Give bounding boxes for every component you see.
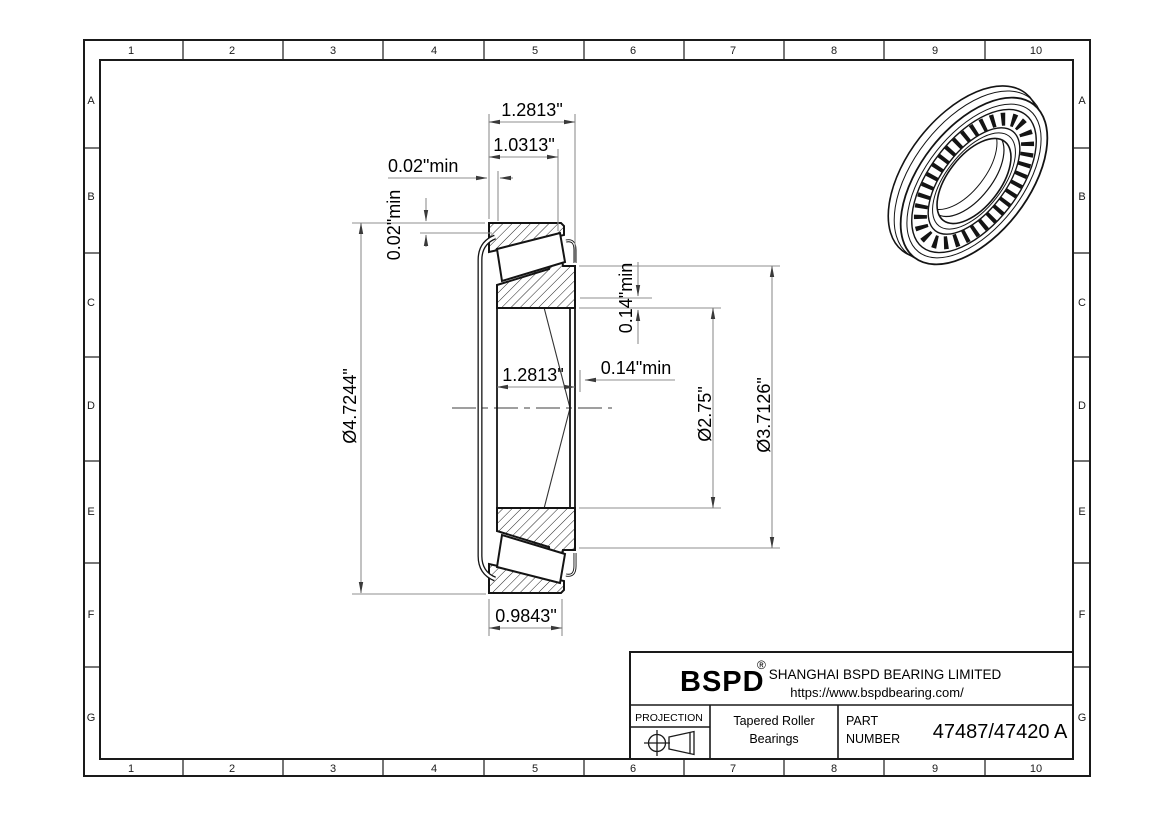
dimension-lines	[352, 114, 780, 636]
grid-row-label: B	[87, 191, 94, 203]
company-name: SHANGHAI BSPD BEARING LIMITED	[769, 667, 1002, 682]
grid-row-label: A	[87, 95, 95, 107]
grid-row-label: E	[87, 506, 94, 518]
grid-col-label: 2	[229, 45, 235, 57]
company-url: https://www.bspdbearing.com/	[790, 685, 964, 700]
title-block: BSPD ® SHANGHAI BSPD BEARING LIMITED htt…	[630, 652, 1073, 759]
part-number-label-line1: PART	[846, 714, 879, 728]
grid-col-label: 2	[229, 763, 235, 775]
grid-row-label: B	[1078, 191, 1085, 203]
registered-trademark-icon: ®	[757, 658, 766, 672]
brand-logo: BSPD	[680, 666, 765, 698]
grid-col-label: 7	[730, 45, 736, 57]
iso-view	[858, 59, 1076, 291]
product-type-line2: Bearings	[749, 732, 798, 746]
dim-bore-diameter: Ø2.75"	[695, 386, 715, 441]
grid-row-label: G	[1078, 712, 1087, 724]
grid-col-label: 9	[932, 45, 938, 57]
section-view	[452, 223, 612, 593]
dim-inner-width: 1.2813"	[502, 365, 563, 385]
grid-col-label: 7	[730, 763, 736, 775]
projection-label: PROJECTION	[635, 712, 703, 724]
product-type-line1: Tapered Roller	[733, 714, 814, 728]
grid-col-label: 9	[932, 763, 938, 775]
grid-row-label: G	[87, 712, 96, 724]
grid-col-label: 1	[128, 763, 134, 775]
grid-col-label: 8	[831, 763, 837, 775]
grid-col-label: 5	[532, 45, 538, 57]
dim-cone-width: 1.0313"	[493, 135, 554, 155]
grid-col-label: 6	[630, 763, 636, 775]
dim-backing-radial: 0.14"min	[616, 263, 636, 333]
grid-col-label: 6	[630, 45, 636, 57]
grid-col-label: 3	[330, 763, 336, 775]
grid-col-label: 4	[431, 45, 437, 57]
dim-housing-shoulder-diameter: Ø3.7126"	[754, 377, 774, 452]
grid-row-label: C	[1078, 297, 1086, 309]
grid-row-label: F	[1079, 609, 1086, 621]
dim-cup-width: 0.9843"	[495, 606, 556, 626]
grid-row-label: D	[1078, 400, 1086, 412]
grid-col-label: 8	[831, 45, 837, 57]
drawing-sheet: 1 2 3 4 5 6 7 8 9 10 1 2 3 4 5 6 7 8 9 1…	[0, 0, 1169, 826]
part-number-label-line2: NUMBER	[846, 732, 900, 746]
grid-col-label: 1	[128, 45, 134, 57]
grid-col-label: 10	[1030, 763, 1042, 775]
dim-outer-diameter: Ø4.7244"	[340, 368, 360, 443]
grid-col-label: 5	[532, 763, 538, 775]
grid-col-label: 4	[431, 763, 437, 775]
grid-row-label: E	[1078, 506, 1085, 518]
dim-cage-clearance-radial: 0.02"min	[384, 190, 404, 260]
grid-col-label: 3	[330, 45, 336, 57]
part-number-value: 47487/47420 A	[933, 721, 1068, 743]
drawing-canvas: 1 2 3 4 5 6 7 8 9 10 1 2 3 4 5 6 7 8 9 1…	[0, 0, 1169, 826]
dim-cage-clearance-axial: 0.02"min	[388, 156, 458, 176]
dim-overall-width: 1.2813"	[501, 100, 562, 120]
grid-row-label: D	[87, 400, 95, 412]
grid-row-label: F	[88, 609, 95, 621]
grid-row-label: A	[1078, 95, 1086, 107]
dim-backing-axial: 0.14"min	[601, 358, 671, 378]
grid-row-label: C	[87, 297, 95, 309]
grid-col-label: 10	[1030, 45, 1042, 57]
